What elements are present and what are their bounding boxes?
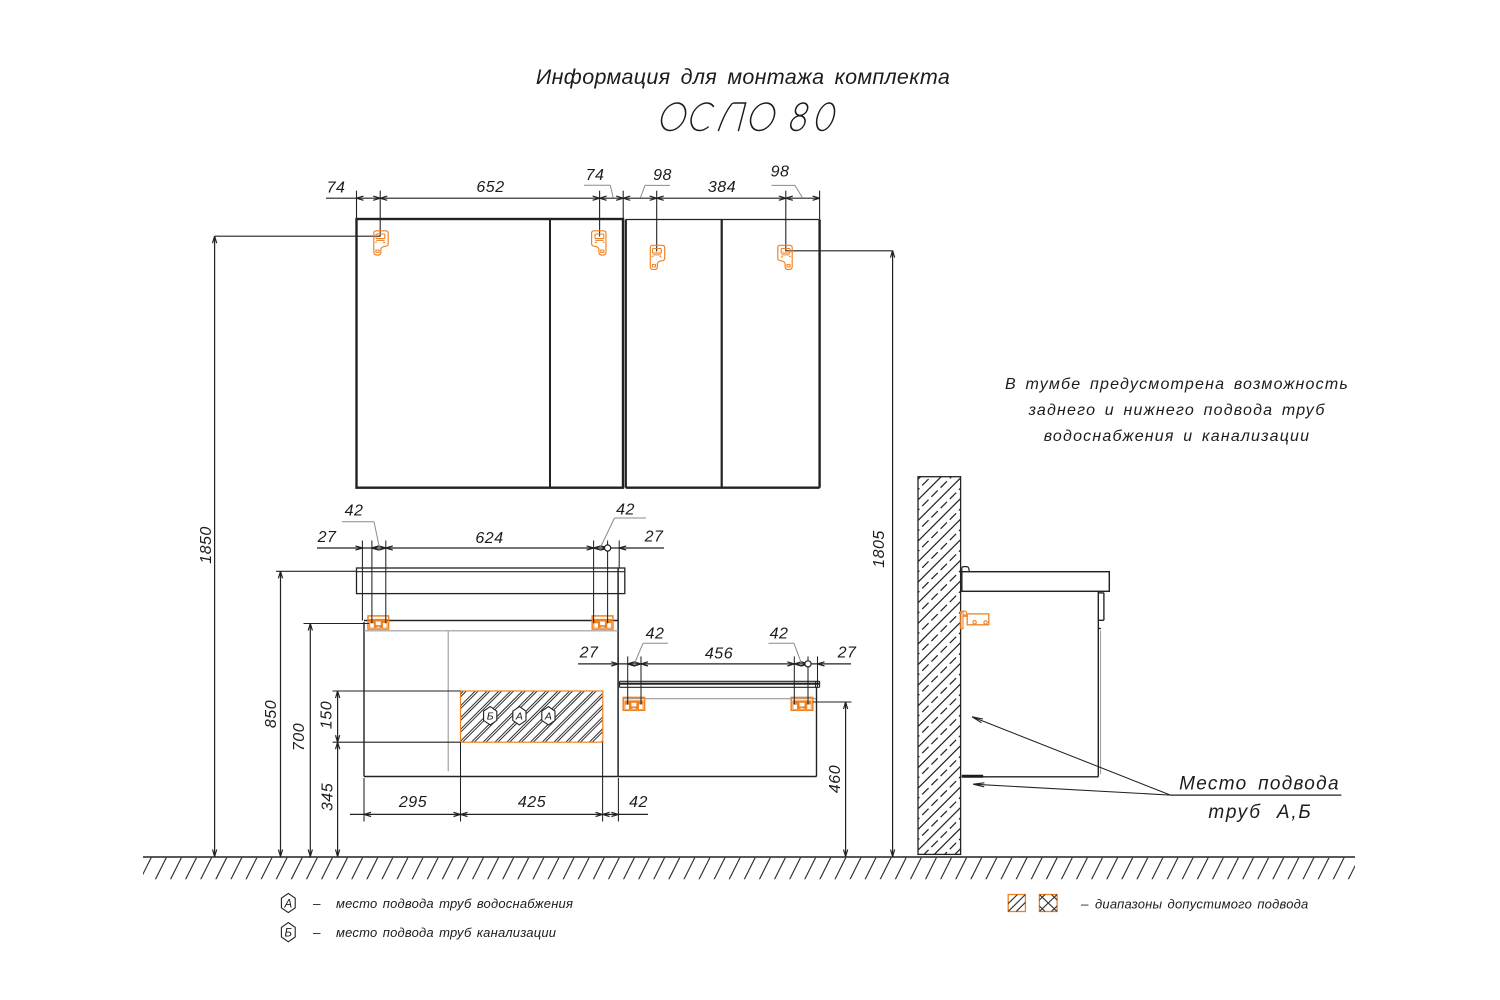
svg-text:В тумбе предусмотрена возможно: В тумбе предусмотрена возможность xyxy=(1005,376,1349,393)
svg-text:27: 27 xyxy=(579,645,599,662)
svg-text:384: 384 xyxy=(708,179,736,196)
svg-text:место подвода труб канализации: место подвода труб канализации xyxy=(336,925,556,940)
svg-text:1805: 1805 xyxy=(871,530,888,568)
svg-text:диапазоны допустимого подвода: диапазоны допустимого подвода xyxy=(1095,897,1308,912)
svg-text:345: 345 xyxy=(319,783,336,811)
svg-text:труб А,Б: труб А,Б xyxy=(1208,802,1312,823)
svg-text:98: 98 xyxy=(771,164,790,181)
svg-text:42: 42 xyxy=(770,626,789,643)
svg-text:460: 460 xyxy=(827,765,844,793)
svg-text:место подвода труб водоснабжен: место подвода труб водоснабжения xyxy=(336,896,573,911)
svg-text:42: 42 xyxy=(629,794,648,811)
svg-text:заднего и нижнего подвода труб: заднего и нижнего подвода труб xyxy=(1027,402,1325,419)
svg-text:42: 42 xyxy=(345,503,364,520)
svg-text:водоснабжения и канализации: водоснабжения и канализации xyxy=(1044,428,1311,445)
svg-text:700: 700 xyxy=(291,723,308,751)
svg-text:42: 42 xyxy=(646,626,665,643)
svg-text:150: 150 xyxy=(318,701,335,729)
svg-text:А: А xyxy=(283,898,292,910)
svg-text:27: 27 xyxy=(837,645,857,662)
svg-text:652: 652 xyxy=(476,179,504,196)
svg-text:Б: Б xyxy=(285,928,293,940)
svg-text:Место подвода: Место подвода xyxy=(1179,774,1340,795)
svg-text:А: А xyxy=(515,711,523,723)
svg-text:Б: Б xyxy=(487,711,494,723)
svg-text:425: 425 xyxy=(518,794,546,811)
svg-text:–: – xyxy=(1080,897,1090,912)
svg-text:98: 98 xyxy=(653,167,672,184)
svg-text:624: 624 xyxy=(475,530,503,547)
svg-text:А: А xyxy=(544,711,552,723)
svg-text:74: 74 xyxy=(327,179,346,196)
svg-text:850: 850 xyxy=(263,700,280,728)
svg-text:–: – xyxy=(312,925,322,940)
svg-text:42: 42 xyxy=(616,502,635,519)
svg-text:295: 295 xyxy=(398,794,427,811)
svg-text:74: 74 xyxy=(586,167,605,184)
svg-text:Информация для монтажа комплек: Информация для монтажа комплекта xyxy=(536,65,950,89)
svg-text:–: – xyxy=(312,896,322,911)
svg-text:1850: 1850 xyxy=(198,526,215,564)
svg-text:456: 456 xyxy=(705,646,733,663)
svg-text:27: 27 xyxy=(644,529,664,546)
svg-text:27: 27 xyxy=(317,529,337,546)
